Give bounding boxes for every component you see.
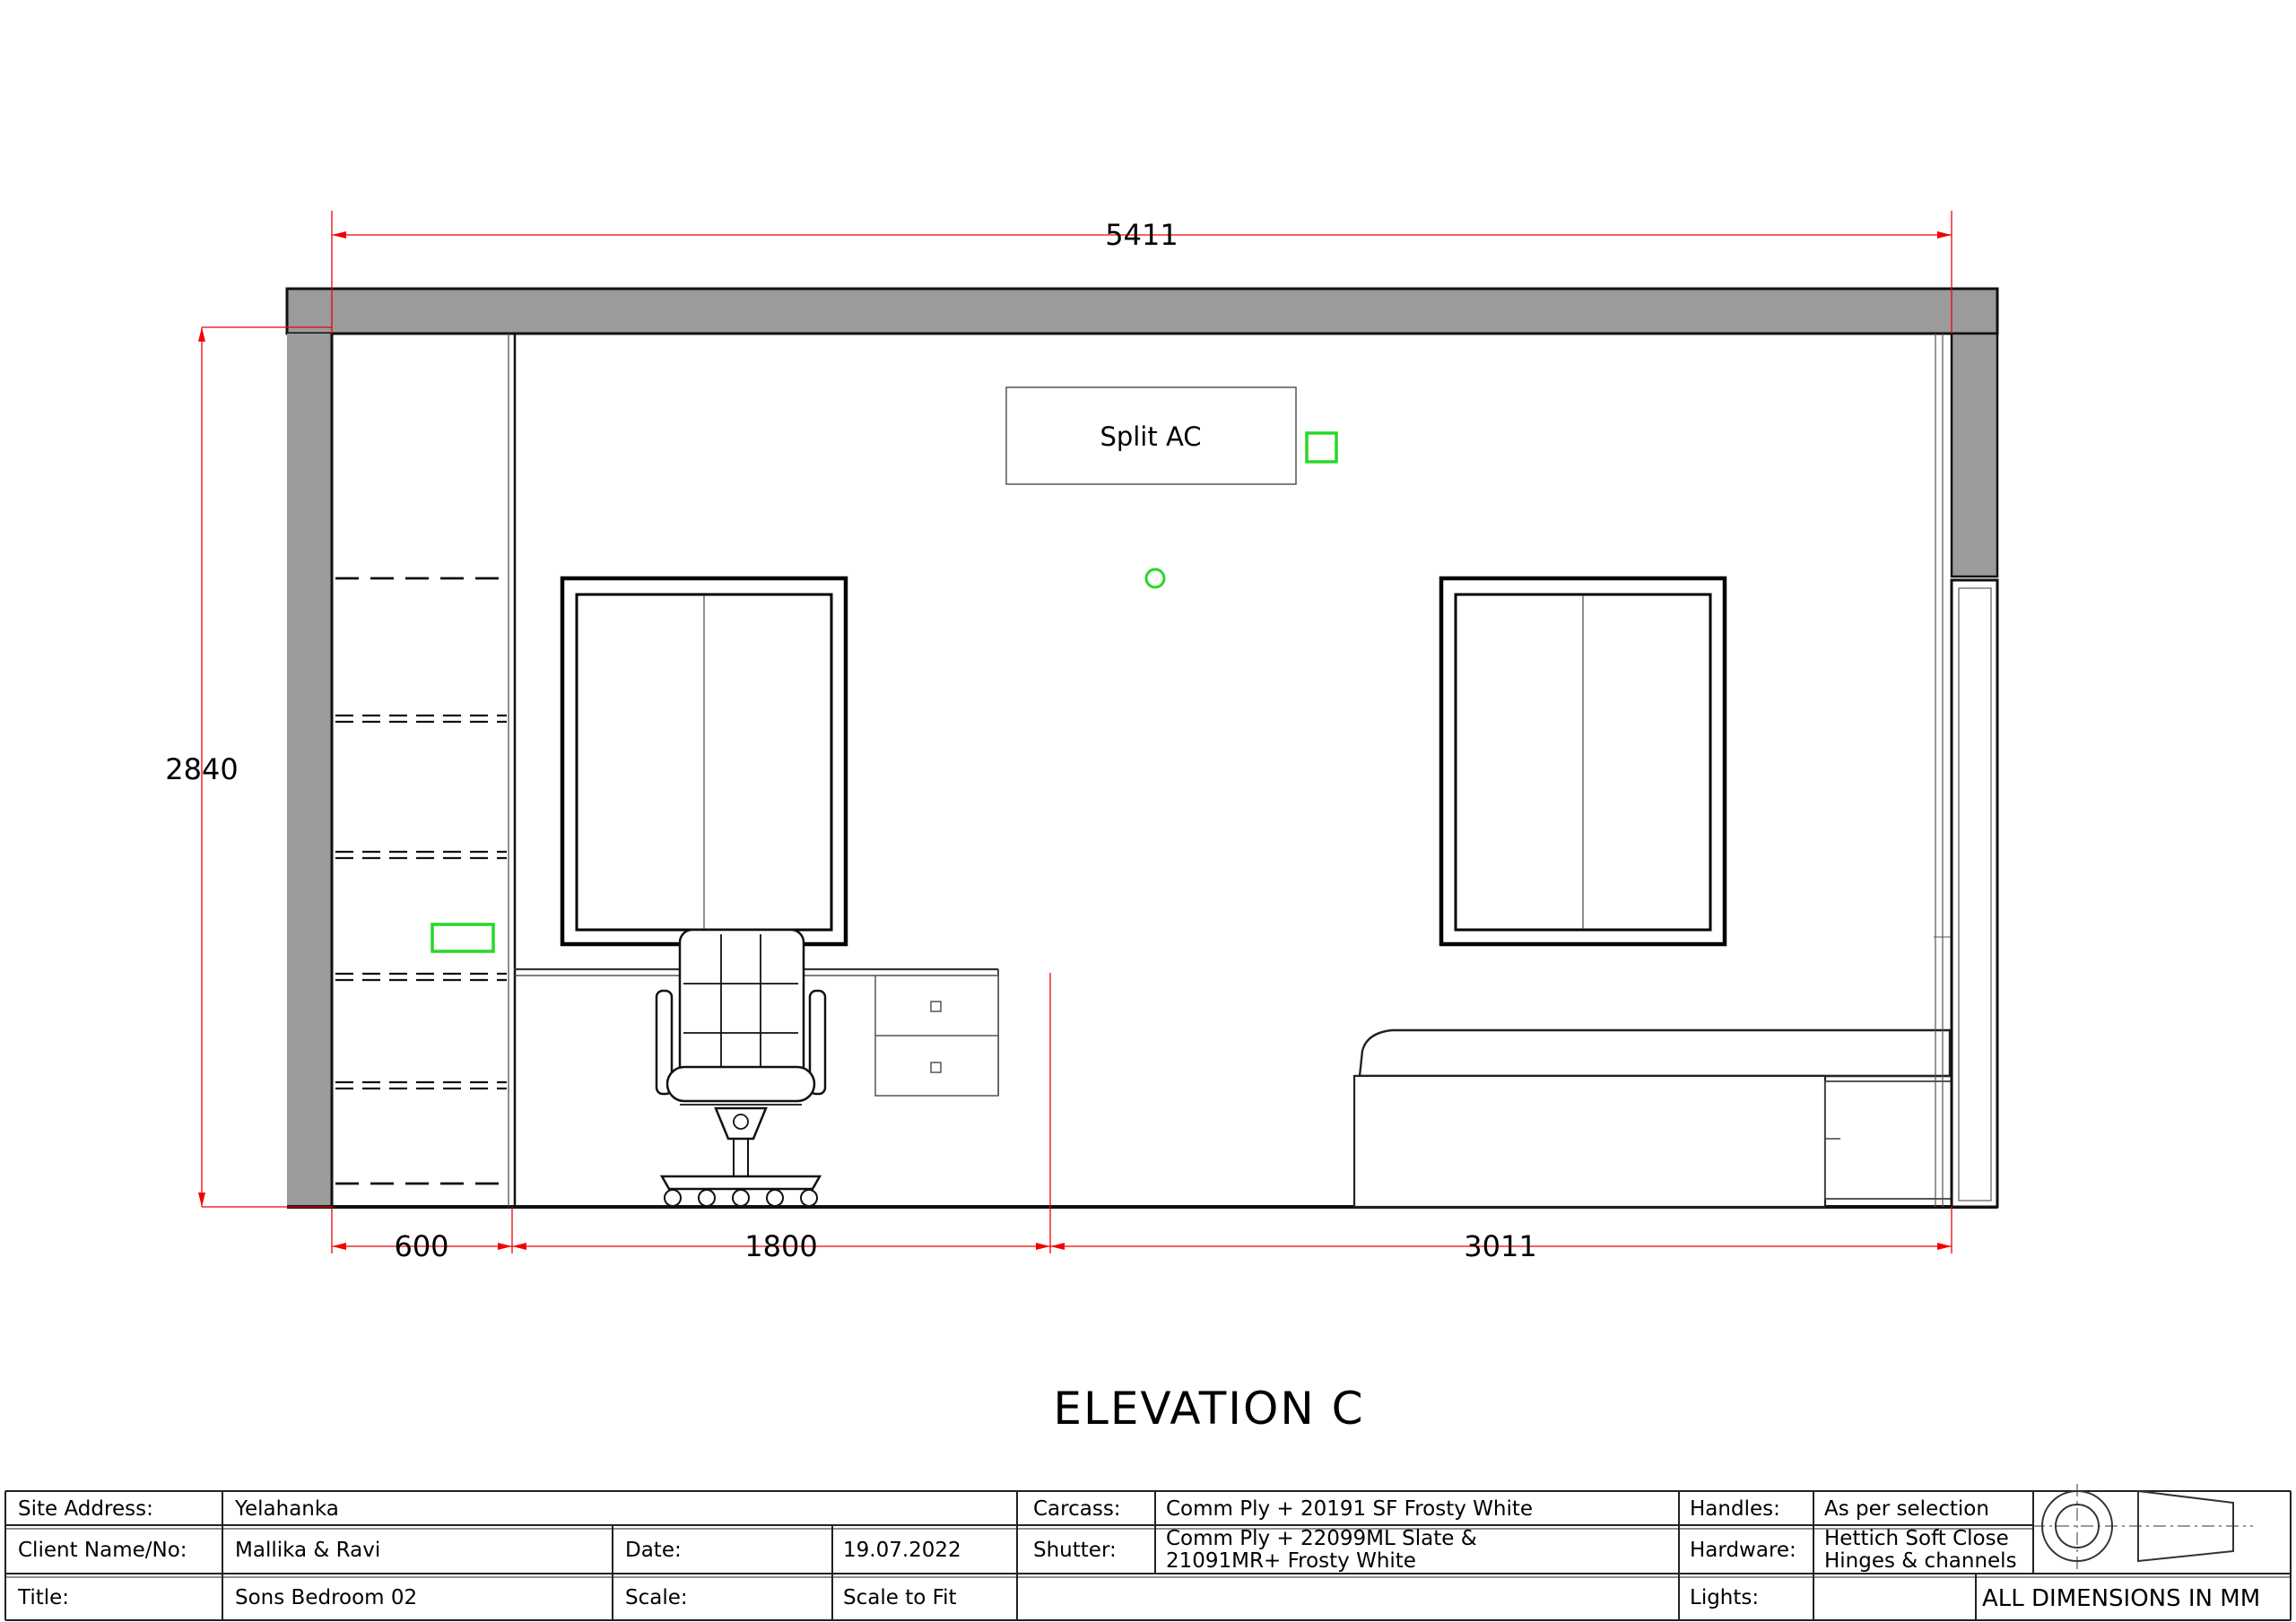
cell-scale-label: Scale: (625, 1586, 688, 1609)
shelf-unit (335, 334, 515, 1207)
dimensions-note: ALL DIMENSIONS IN MM (1982, 1585, 2260, 1612)
office-chair (657, 930, 825, 1206)
third-angle-projection-icon (2032, 1484, 2253, 1569)
bedside-unit (1825, 1081, 1960, 1199)
light-point-marker-circle (1146, 569, 1164, 587)
dim-right-segment: 3011 (1464, 1229, 1536, 1263)
wardrobe-left (562, 578, 846, 944)
cell-scale-value: Scale to Fit (843, 1586, 957, 1609)
switch-marker-green-rect (432, 924, 493, 951)
bed-base (1354, 1076, 1825, 1207)
cell-hardware-label: Hardware: (1690, 1539, 1796, 1562)
dim-left-segment: 600 (394, 1229, 448, 1263)
drawer-unit (875, 976, 998, 1096)
drawer-knob (931, 1063, 941, 1072)
cell-client-value: Mallika & Ravi (235, 1539, 380, 1562)
cell-title-value: Sons Bedroom 02 (235, 1586, 417, 1609)
dim-total-width: 5411 (1105, 218, 1178, 252)
split-ac-label: Split AC (1100, 421, 1201, 452)
cell-site-address-label: Site Address: (18, 1497, 153, 1521)
elevation-drawing-svg: Split AC (0, 0, 2296, 1622)
cell-site-address-value: Yelahanka (234, 1497, 339, 1521)
title-block: Site Address: Yelahanka Carcass: Comm Pl… (17, 1497, 2260, 1612)
cell-carcass-label: Carcass: (1033, 1497, 1121, 1521)
right-wall-column (1952, 334, 1997, 577)
cell-hardware-value-line2: Hinges & channels (1824, 1549, 2017, 1573)
drawing-title: ELEVATION C (1053, 1383, 1364, 1435)
bed-mattress (1360, 1030, 1950, 1076)
cell-shutter-value-line2: 21091MR+ Frosty White (1166, 1549, 1416, 1573)
cell-handles-value: As per selection (1824, 1497, 1989, 1521)
cell-handles-label: Handles: (1690, 1497, 1780, 1521)
cell-shutter-label: Shutter: (1033, 1539, 1117, 1562)
split-ac-box: Split AC (1006, 387, 1296, 484)
left-wall (287, 334, 332, 1207)
dim-middle-segment: 1800 (744, 1229, 817, 1263)
cell-lights-label: Lights: (1690, 1586, 1759, 1609)
cell-hardware-value-line1: Hettich Soft Close (1824, 1527, 2009, 1550)
cell-shutter-value-line1: Comm Ply + 22099ML Slate & (1166, 1527, 1477, 1550)
ac-point-marker-square (1307, 433, 1336, 462)
wardrobe-right (1441, 578, 1725, 944)
bed (1354, 1030, 1964, 1207)
cell-client-label: Client Name/No: (18, 1539, 187, 1562)
cell-carcass-value: Comm Ply + 20191 SF Frosty White (1166, 1497, 1533, 1521)
cell-date-label: Date: (625, 1539, 682, 1562)
elevation-sheet: Split AC (0, 0, 2296, 1622)
cell-title-label: Title: (17, 1586, 69, 1609)
cell-date-value: 19.07.2022 (843, 1539, 961, 1562)
dim-total-height: 2840 (165, 752, 238, 786)
ceiling-slab (287, 289, 1997, 334)
drawer-knob (931, 1002, 941, 1011)
